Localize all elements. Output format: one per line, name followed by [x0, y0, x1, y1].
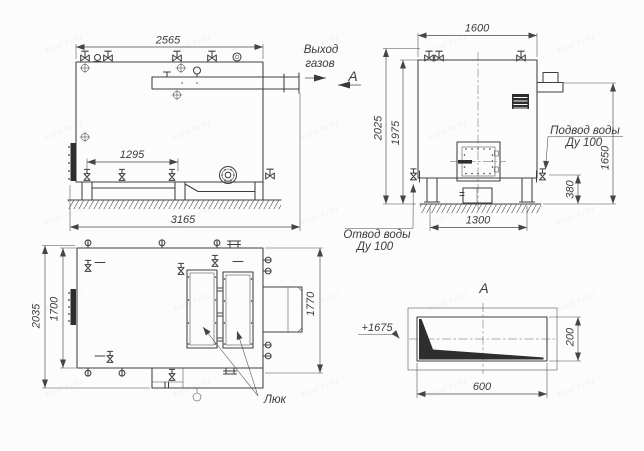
side-nozzles-plan [263, 257, 271, 359]
dim-380: 380 [549, 175, 581, 204]
side-view: 2565 1295 3165 Выход газов А [68, 35, 361, 232]
top-valves-side [81, 51, 241, 61]
ground-hatch [420, 205, 541, 214]
dim-text-1300: 1300 [466, 215, 491, 227]
level-mark: +1675 [358, 322, 400, 339]
dim-text-1295: 1295 [120, 149, 145, 161]
datum-mark [80, 132, 90, 142]
section-letter: А [347, 68, 357, 84]
water-inlet-text-2: Ду 100 [564, 137, 603, 149]
gas-outlet-text-2: газов [305, 58, 334, 70]
water-inlet-text-1: Подвод воды [550, 125, 620, 137]
top-fittings-plan [85, 240, 240, 248]
boiler-body-plan [77, 248, 263, 368]
hatch-1 [187, 270, 217, 348]
bottom-extension-plan [85, 368, 263, 401]
dim-text-1770: 1770 [305, 291, 317, 316]
level-mark-text: +1675 [362, 322, 394, 334]
boiler-engineering-drawing: { "watermark": { "text": "kotel-kv.kz" }… [0, 0, 644, 430]
front-view: 1600 2025 1975 1650 380 1 [343, 23, 623, 254]
dim-1975: 1975 [390, 60, 418, 204]
dim-text-380: 380 [565, 179, 577, 198]
dim-text-3165: 3165 [171, 214, 196, 226]
gas-outlet-label: Выход газов [304, 44, 339, 78]
dim-text-600: 600 [473, 381, 492, 393]
dim-1770: 1770 [265, 248, 323, 373]
gas-outlet-text-1: Выход [304, 44, 339, 56]
gas-duct-plan [263, 287, 302, 332]
drain-cocks-side [84, 169, 274, 180]
dim-text-2565: 2565 [155, 35, 181, 47]
datum-mark [80, 63, 90, 73]
hatch-label-text: Люк [263, 394, 287, 406]
supports-side [68, 182, 281, 209]
right-top-stub [537, 73, 563, 93]
datum-mark [172, 90, 182, 100]
dim-text-200: 200 [565, 327, 577, 347]
dim-1600: 1600 [418, 23, 537, 58]
section-title: А [478, 280, 488, 296]
inner-valves-plan [85, 255, 243, 362]
dim-text-1700: 1700 [49, 296, 61, 321]
drawing-canvas: 2565 1295 3165 Выход газов А [0, 0, 644, 430]
section-cut-mark: А [338, 68, 361, 85]
dim-text-2025: 2025 [373, 115, 385, 141]
ash-door [463, 188, 492, 203]
dim-text-2035: 2035 [31, 303, 43, 329]
hatch-2 [223, 272, 253, 348]
hatch-label: Люк [203, 327, 287, 406]
gas-outlet-duct [152, 67, 299, 93]
hatch-hinges [218, 288, 222, 341]
ground-hatch [68, 201, 281, 210]
supports-front [420, 178, 541, 213]
dim-text-1600: 1600 [465, 23, 490, 35]
water-drain-text-1: Отвод воды [343, 229, 411, 241]
dim-1295: 1295 [87, 149, 178, 171]
water-drain-valve [411, 169, 417, 180]
flange-circle [220, 167, 237, 184]
boiler-body-front [418, 60, 537, 178]
water-inlet-valve [540, 169, 546, 180]
dim-text-1975: 1975 [390, 120, 402, 145]
section-view: А 200 600 +1675 [358, 280, 581, 398]
burner-flange-plan [68, 289, 76, 325]
boiler-body-side [76, 62, 263, 182]
dim-600: 600 [417, 363, 547, 398]
nameplate [512, 94, 529, 109]
plan-view: 2035 1700 1770 Люк [31, 240, 324, 406]
burner-flange-side [68, 143, 76, 181]
water-drain-text-2: Ду 100 [355, 241, 394, 253]
datum-mark [176, 63, 186, 73]
